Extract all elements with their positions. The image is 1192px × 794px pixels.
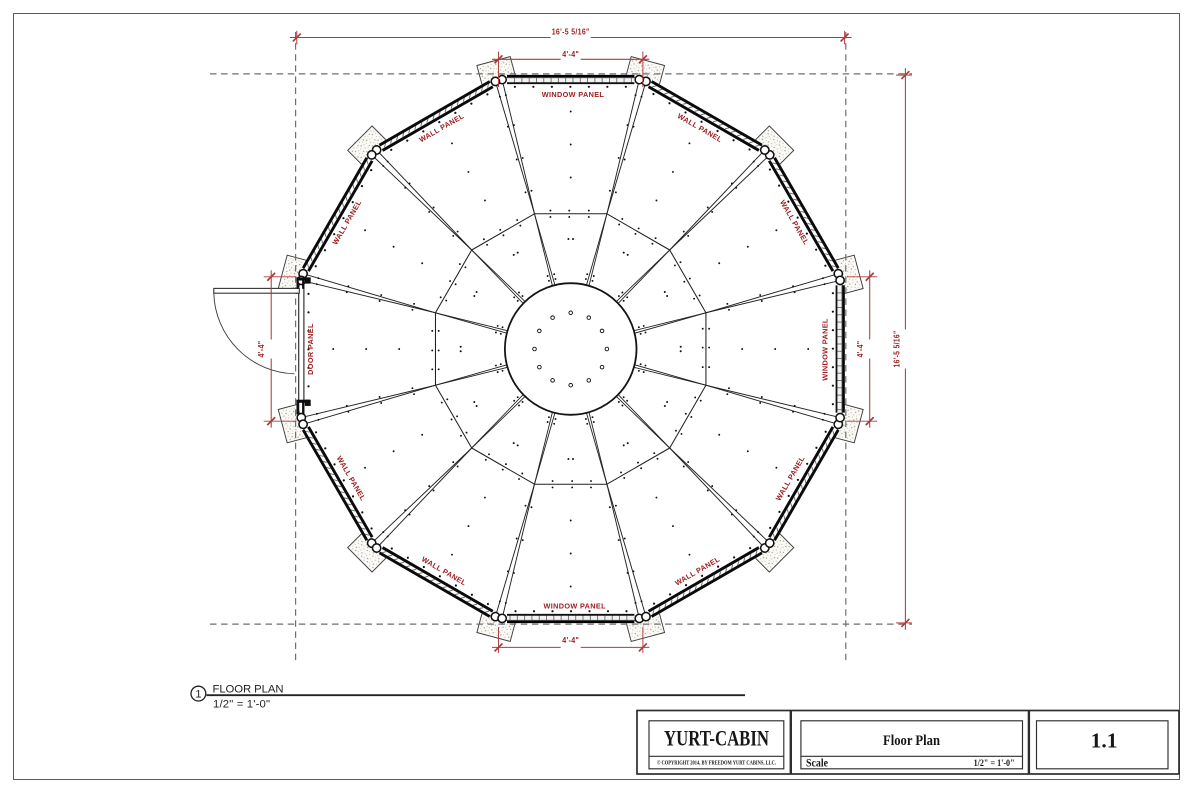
svg-text:DOOR PANEL: DOOR PANEL — [306, 323, 315, 375]
svg-text:WINDOW PANEL: WINDOW PANEL — [543, 601, 606, 610]
svg-text:© COPYRIGHT 2014, BY FREEDOM Y: © COPYRIGHT 2014, BY FREEDOM YURT CABINS… — [657, 760, 776, 767]
svg-text:4'-4": 4'-4" — [257, 341, 266, 358]
svg-text:Floor Plan: Floor Plan — [883, 732, 940, 749]
svg-text:YURT-CABIN: YURT-CABIN — [664, 726, 769, 751]
svg-text:1.1: 1.1 — [1091, 728, 1118, 752]
svg-text:16'-5 5/16": 16'-5 5/16" — [552, 27, 590, 36]
svg-text:4'-4": 4'-4" — [562, 50, 579, 59]
svg-text:Scale: Scale — [806, 757, 828, 769]
svg-text:4'-4": 4'-4" — [562, 636, 579, 645]
svg-text:WINDOW PANEL: WINDOW PANEL — [821, 318, 830, 381]
svg-text:1/2" = 1'-0": 1/2" = 1'-0" — [213, 698, 270, 710]
svg-text:4'-4": 4'-4" — [856, 341, 865, 358]
svg-text:WINDOW PANEL: WINDOW PANEL — [542, 90, 605, 99]
svg-text:1: 1 — [195, 689, 201, 701]
svg-text:16'-5 5/16": 16'-5 5/16" — [892, 331, 902, 368]
svg-text:FLOOR PLAN: FLOOR PLAN — [213, 683, 284, 695]
svg-text:1/2" = 1'-0": 1/2" = 1'-0" — [974, 758, 1015, 769]
